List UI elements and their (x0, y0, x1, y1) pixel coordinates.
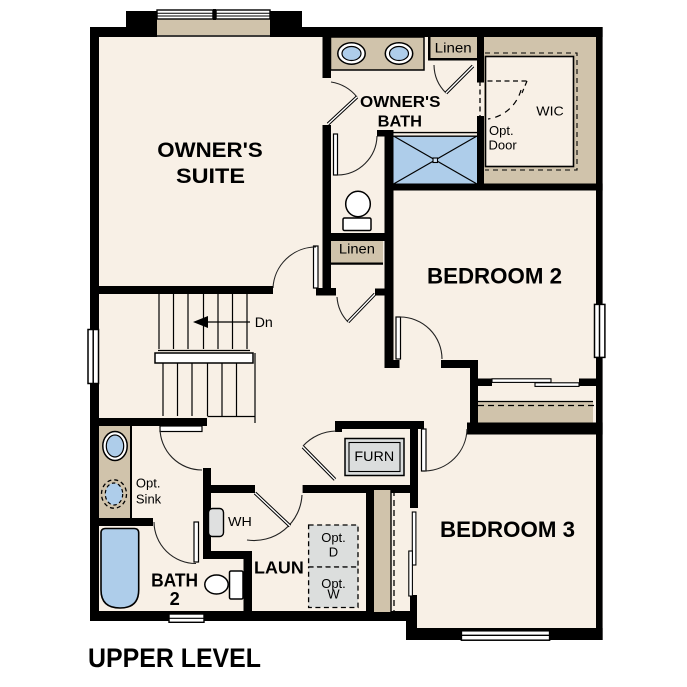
svg-text:UPPER LEVEL: UPPER LEVEL (88, 642, 261, 673)
svg-text:Opt.: Opt. (136, 475, 161, 490)
svg-text:LAUN: LAUN (254, 557, 304, 577)
svg-text:WH: WH (228, 514, 252, 529)
svg-text:Door: Door (489, 137, 518, 152)
svg-text:Sink: Sink (136, 492, 162, 507)
svg-text:WIC: WIC (536, 103, 564, 118)
svg-text:Opt.: Opt. (489, 123, 514, 138)
svg-text:BEDROOM 2: BEDROOM 2 (427, 263, 562, 288)
svg-text:BEDROOM 3: BEDROOM 3 (440, 517, 575, 542)
svg-text:OWNER'S: OWNER'S (157, 139, 263, 162)
svg-text:W: W (327, 586, 340, 601)
svg-text:Linen: Linen (435, 41, 472, 56)
svg-text:D: D (329, 545, 338, 560)
svg-text:Opt.: Opt. (321, 530, 346, 545)
svg-text:BATH: BATH (378, 113, 422, 130)
svg-text:SUITE: SUITE (176, 165, 245, 188)
svg-text:Dn: Dn (255, 315, 273, 331)
svg-text:FURN: FURN (354, 449, 394, 465)
svg-text:2: 2 (170, 588, 180, 609)
svg-text:Linen: Linen (339, 241, 375, 256)
svg-text:OWNER'S: OWNER'S (360, 94, 440, 111)
